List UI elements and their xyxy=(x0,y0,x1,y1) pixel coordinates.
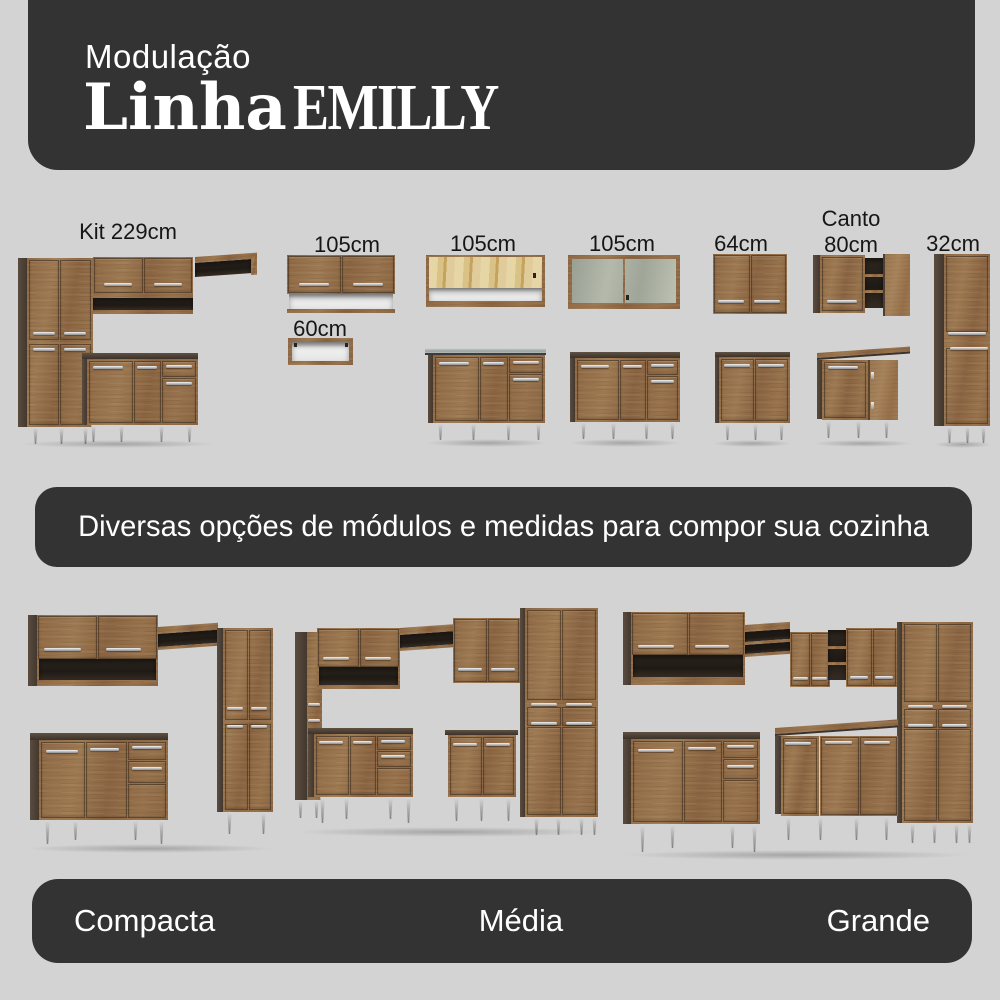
set-compacta-graphic xyxy=(20,612,276,856)
category-compacta: Compacta xyxy=(74,903,215,939)
module-105c-graphic xyxy=(568,253,682,447)
bridge-shelf xyxy=(158,623,218,651)
corner-countertop xyxy=(775,719,898,736)
bridge-shelf xyxy=(400,624,453,652)
header-banner: Modulação LinhaEMILLY xyxy=(28,0,975,170)
module-label-canto-80: Canto80cm xyxy=(822,206,881,258)
module-label-kit229: Kit 229cm xyxy=(79,219,177,245)
module-64-graphic xyxy=(712,252,792,446)
module-32-graphic xyxy=(934,252,992,447)
module-kit229-graphic xyxy=(18,254,258,449)
title-line-name: Linha xyxy=(83,70,287,145)
set-media-graphic xyxy=(293,607,605,847)
module-105a-graphic xyxy=(287,253,397,369)
mid-banner: Diversas opções de módulos e medidas par… xyxy=(35,487,972,567)
category-media: Média xyxy=(479,903,563,939)
title-brand-name: EMILLY xyxy=(293,70,498,146)
mid-banner-text: Diversas opções de módulos e medidas par… xyxy=(78,510,929,544)
bridge-shelf xyxy=(745,622,790,657)
set-grande-graphic xyxy=(621,610,977,866)
sink-top xyxy=(425,348,546,355)
size-categories-banner: Compacta Média Grande xyxy=(32,879,972,963)
category-grande: Grande xyxy=(827,903,930,939)
corner-countertop xyxy=(817,346,910,360)
module-canto80-graphic xyxy=(813,252,913,447)
product-infographic: Modulação LinhaEMILLY Kit 229cm 105cm 60… xyxy=(0,0,1000,1000)
top-shelf xyxy=(195,253,257,283)
page-title: LinhaEMILLY xyxy=(83,70,543,146)
module-105b-graphic xyxy=(425,253,549,448)
corner-shelves xyxy=(828,630,846,680)
